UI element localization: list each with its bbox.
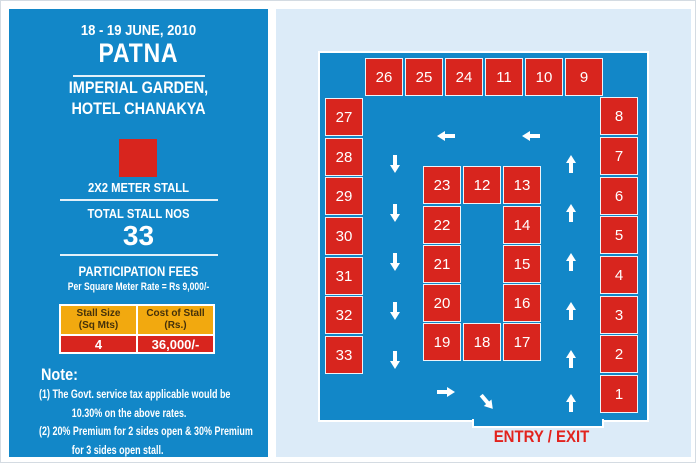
stall-20: 20 bbox=[423, 284, 461, 322]
stall-6: 6 bbox=[600, 177, 638, 215]
down-arrow bbox=[389, 253, 401, 271]
down-arrow bbox=[389, 302, 401, 320]
stall-29: 29 bbox=[325, 177, 363, 215]
stall-12: 12 bbox=[463, 166, 501, 204]
stall-11: 11 bbox=[485, 58, 523, 96]
stall-3: 3 bbox=[600, 296, 638, 334]
left-arrow bbox=[522, 130, 540, 142]
up-arrow bbox=[565, 253, 577, 271]
diag-arrow bbox=[477, 391, 498, 413]
stall-17: 17 bbox=[503, 323, 541, 361]
stall-24: 24 bbox=[445, 58, 483, 96]
stall-10: 10 bbox=[525, 58, 563, 96]
stall-7: 7 bbox=[600, 137, 638, 175]
up-arrow bbox=[565, 350, 577, 368]
stall-1: 1 bbox=[600, 375, 638, 413]
stall-21: 21 bbox=[423, 245, 461, 283]
floor-plan: 2625241110927282930313233876543212312132… bbox=[1, 1, 696, 463]
stall-9: 9 bbox=[565, 58, 603, 96]
stall-28: 28 bbox=[325, 138, 363, 176]
stall-33: 33 bbox=[325, 336, 363, 374]
up-arrow bbox=[565, 394, 577, 412]
stall-16: 16 bbox=[503, 284, 541, 322]
stall-32: 32 bbox=[325, 296, 363, 334]
stall-2: 2 bbox=[600, 335, 638, 373]
stall-31: 31 bbox=[325, 257, 363, 295]
stall-18: 18 bbox=[463, 323, 501, 361]
stall-30: 30 bbox=[325, 217, 363, 255]
stall-26: 26 bbox=[365, 58, 403, 96]
up-arrow bbox=[565, 204, 577, 222]
right-arrow bbox=[437, 386, 455, 398]
exhibition-layout-poster: 18 - 19 JUNE, 2010 PATNA IMPERIAL GARDEN… bbox=[0, 0, 696, 463]
up-arrow bbox=[565, 302, 577, 320]
stall-15: 15 bbox=[503, 245, 541, 283]
down-arrow bbox=[389, 204, 401, 222]
stall-4: 4 bbox=[600, 256, 638, 294]
stall-19: 19 bbox=[423, 323, 461, 361]
stall-8: 8 bbox=[600, 97, 638, 135]
stall-5: 5 bbox=[600, 216, 638, 254]
up-arrow bbox=[565, 155, 577, 173]
stall-13: 13 bbox=[503, 166, 541, 204]
down-arrow bbox=[389, 351, 401, 369]
stall-27: 27 bbox=[325, 98, 363, 136]
stall-25: 25 bbox=[405, 58, 443, 96]
down-arrow bbox=[389, 155, 401, 173]
left-arrow bbox=[437, 130, 455, 142]
stall-23: 23 bbox=[423, 166, 461, 204]
stall-22: 22 bbox=[423, 206, 461, 244]
stall-14: 14 bbox=[503, 206, 541, 244]
